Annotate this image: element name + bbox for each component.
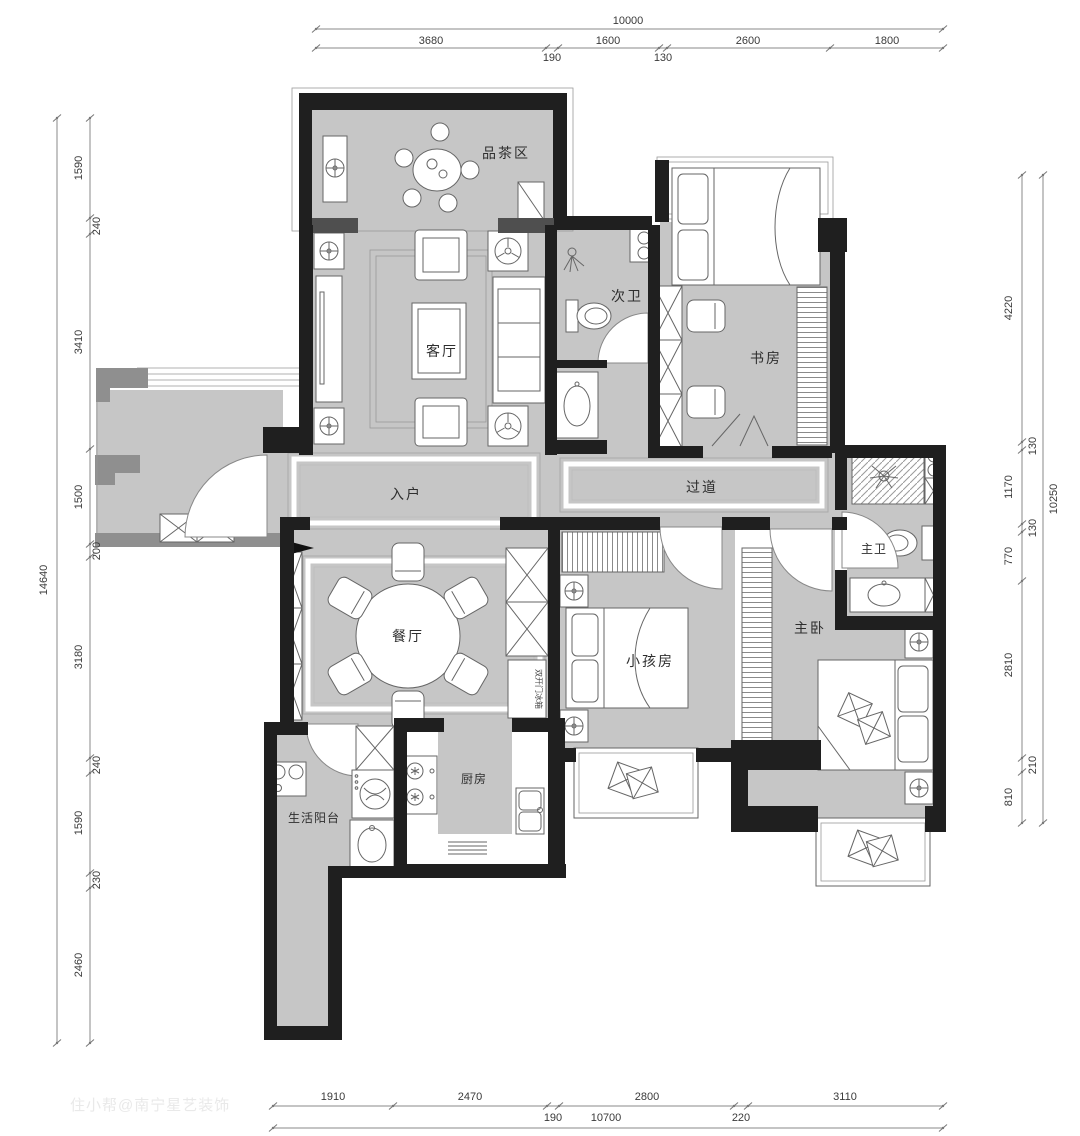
dim-bottom-total: 10700 (591, 1112, 622, 1124)
stairs (137, 368, 299, 386)
stove (403, 756, 437, 814)
dim-top-seg-2: 1600 (596, 35, 620, 47)
label-fridge: 双开门冰箱 (534, 669, 544, 709)
label-master-bath: 主卫 (861, 542, 887, 556)
coffee-table (412, 303, 466, 379)
dim-left-seg-1: 240 (91, 217, 103, 235)
label-tea-area: 品茶区 (482, 145, 530, 161)
kitchen-sink (516, 788, 544, 834)
dim-right-seg-7: 810 (1003, 788, 1015, 806)
dim-top-total: 10000 (613, 15, 644, 27)
lamp-box-top-left (314, 233, 344, 269)
dim-right-seg-3: 130 (1027, 519, 1039, 537)
dim-left-seg-9: 2460 (73, 953, 85, 977)
master-bed (818, 660, 933, 770)
kids-bay-window (574, 748, 698, 818)
dim-left-seg-4: 200 (91, 542, 103, 560)
dimension-chain-bottom: 1910 2470 190 2800 220 3110 10700 (269, 1091, 947, 1132)
shower-area (852, 452, 924, 504)
kids-nightstand-top (560, 575, 588, 607)
master-bath-vanity (850, 578, 928, 612)
dimension-chain-right: 4220 130 1170 130 770 2810 210 810 10250 (1003, 172, 1060, 827)
tv-cabinet (316, 276, 342, 402)
dim-left-seg-8: 230 (91, 871, 103, 889)
dim-right-seg-4: 770 (1003, 547, 1015, 565)
dim-right-seg-2: 1170 (1003, 475, 1015, 499)
master-nightstand-bottom (905, 772, 933, 804)
dim-left-seg-2: 3410 (73, 330, 85, 354)
label-study: 书房 (750, 350, 782, 366)
dim-right-seg-0: 4220 (1003, 296, 1015, 320)
dim-right-total: 10250 (1048, 484, 1060, 515)
dim-left-seg-3: 1500 (73, 485, 85, 509)
dim-left-seg-5: 3180 (73, 645, 85, 669)
label-second-bath: 次卫 (611, 288, 643, 304)
dim-right-seg-5: 2810 (1003, 653, 1015, 677)
dimension-chain-left: 14640 1590 240 3410 1500 200 3180 240 15… (38, 115, 103, 1047)
dim-top-seg-4: 2600 (736, 35, 760, 47)
floor-plan-page: 10000 3680 190 1600 130 2600 1800 14640 … (0, 0, 1080, 1136)
master-nightstand-top (905, 626, 933, 658)
ceiling-fan-bottom (488, 406, 528, 446)
dim-left-seg-6: 240 (91, 756, 103, 774)
dim-bottom-seg-3: 2800 (635, 1091, 659, 1103)
label-dining-room: 餐厅 (392, 628, 424, 644)
balcony-basin (350, 820, 394, 868)
kids-wardrobe (742, 548, 772, 753)
study-wardrobe (797, 287, 827, 445)
lamp-box-bottom-left (314, 408, 344, 444)
dim-left-seg-7: 1590 (73, 811, 85, 835)
ac-unit (518, 182, 544, 220)
sofa (493, 277, 545, 403)
armchair-top (415, 230, 467, 280)
washing-machine (352, 770, 394, 818)
label-service-balcony: 生活阳台 (288, 810, 340, 825)
dim-top-seg-3: 130 (654, 52, 672, 64)
label-kitchen: 厨房 (461, 771, 487, 786)
dim-bottom-seg-0: 1910 (321, 1091, 345, 1103)
dim-bottom-seg-5: 3110 (833, 1091, 857, 1103)
study-bed (672, 168, 820, 285)
label-living-room: 客厅 (426, 343, 458, 359)
floor-plan-drawing: 10000 3680 190 1600 130 2600 1800 14640 … (0, 0, 1080, 1136)
armchair-bottom (415, 398, 467, 446)
label-entry: 入户 (390, 486, 422, 502)
watermark: 住小帮@南宁星艺装饰 (70, 1097, 230, 1114)
label-master-bedroom: 主卧 (794, 620, 826, 636)
master-bay-window (816, 818, 930, 886)
dim-bottom-seg-4: 220 (732, 1112, 750, 1124)
kitchen-mat (448, 842, 487, 854)
dim-left-total: 14640 (38, 565, 50, 596)
dim-top-seg-1: 190 (543, 52, 561, 64)
dim-bottom-seg-2: 190 (544, 1112, 562, 1124)
ceiling-fan-top (488, 231, 528, 271)
dim-top-seg-0: 3680 (419, 35, 443, 47)
bath-vanity (556, 372, 598, 438)
kids-desk (562, 532, 664, 572)
dim-bottom-seg-1: 2470 (458, 1091, 482, 1103)
label-hallway: 过道 (686, 479, 718, 495)
label-kids-room: 小孩房 (626, 653, 674, 669)
dim-left-seg-0: 1590 (73, 156, 85, 180)
dim-top-seg-5: 1800 (875, 35, 899, 47)
dim-right-seg-6: 210 (1027, 756, 1039, 774)
dim-right-seg-1: 130 (1027, 437, 1039, 455)
dimension-chain-top: 10000 3680 190 1600 130 2600 1800 (312, 15, 947, 64)
